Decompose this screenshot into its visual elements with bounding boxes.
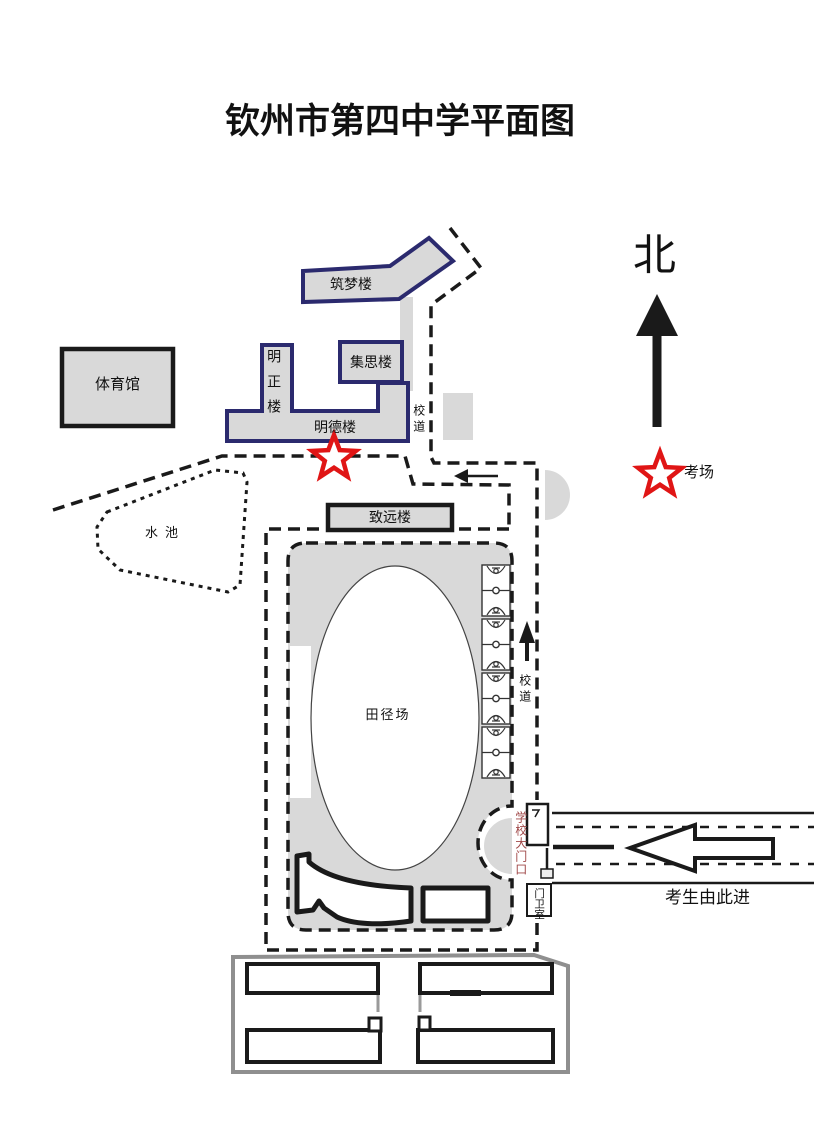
campus-road-upper-label: 校道 bbox=[411, 404, 425, 436]
classroom-building bbox=[247, 964, 378, 993]
campus-road-lower-label: 校道 bbox=[517, 674, 531, 706]
south-classroom-block bbox=[233, 955, 568, 1072]
guard-room-label: 门卫室 bbox=[532, 888, 544, 920]
small-gray-building bbox=[443, 393, 473, 440]
entry-direction-label: 考生由此进 bbox=[640, 888, 775, 908]
pond-label: 水池 bbox=[132, 526, 198, 541]
gate-turnaround bbox=[484, 818, 512, 874]
campus-map: 钦州市第四中学平面图 体育馆 筑梦楼 明正楼 集思楼 明德楼 致远楼 水池 田径… bbox=[0, 0, 814, 1127]
zhumeng-building-shape bbox=[303, 238, 453, 302]
jisi-building-label: 集思楼 bbox=[340, 354, 402, 370]
legend-exam-site-label: 考场 bbox=[684, 464, 714, 481]
campus-road-up-arrow bbox=[519, 621, 535, 661]
mingzheng-building-label: 明正楼 bbox=[266, 349, 282, 424]
basketball-court-icon bbox=[482, 673, 510, 724]
classroom-building bbox=[418, 1030, 553, 1062]
legend-star-icon bbox=[638, 452, 682, 494]
street bbox=[552, 813, 814, 883]
basketball-court-icon bbox=[482, 619, 510, 670]
page-title: 钦州市第四中学平面图 bbox=[170, 102, 630, 142]
gymnasium-label: 体育馆 bbox=[62, 377, 173, 394]
north-label: 北 bbox=[633, 232, 676, 281]
basketball-court-icon bbox=[482, 565, 510, 616]
map-drawing bbox=[0, 0, 814, 1127]
zhiyuan-building-label: 致远楼 bbox=[328, 509, 452, 525]
basketball-court-icon bbox=[482, 727, 510, 778]
classroom-building bbox=[247, 1030, 380, 1062]
small-building-shape bbox=[423, 888, 488, 921]
roadside-bay bbox=[545, 470, 570, 520]
mingde-building-label: 明德楼 bbox=[295, 419, 375, 435]
main-gate-label: 学校大门口 bbox=[513, 811, 527, 876]
north-arrow bbox=[636, 294, 678, 427]
classroom-building bbox=[420, 964, 552, 993]
athletic-field-label: 田径场 bbox=[348, 708, 428, 723]
zhumeng-building-label: 筑梦楼 bbox=[330, 276, 372, 292]
path-left-arrow bbox=[454, 469, 498, 483]
